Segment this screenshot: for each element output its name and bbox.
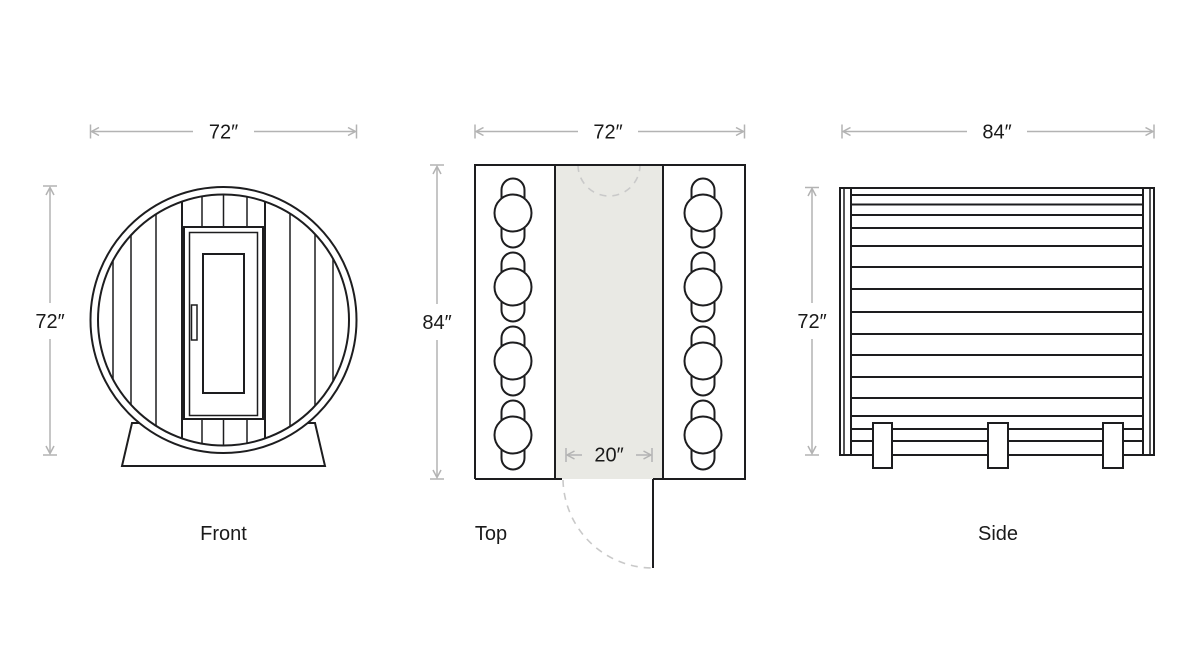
top-width-value: 72″ xyxy=(593,122,622,144)
sauna-dimension-diagram: 72″ 72″ Front xyxy=(0,0,1200,654)
seat-icon xyxy=(685,401,722,470)
top-view: 72″ 84″ xyxy=(422,122,745,569)
seat-icon xyxy=(495,253,532,322)
side-length-value: 84″ xyxy=(982,122,1011,144)
front-height-value: 72″ xyxy=(35,311,64,333)
top-aisle xyxy=(555,165,663,479)
front-door-window xyxy=(203,254,244,393)
top-depth-dimension: 84″ xyxy=(422,165,451,479)
front-view: 72″ 72″ Front xyxy=(35,122,356,546)
side-length-dimension: 84″ xyxy=(842,122,1154,144)
side-view-label: Side xyxy=(978,523,1018,545)
front-height-dimension: 72″ xyxy=(35,186,64,455)
side-support-leg xyxy=(1103,423,1123,468)
seat-icon xyxy=(495,401,532,470)
top-door-swing-arc xyxy=(563,480,653,568)
front-view-label: Front xyxy=(200,523,247,545)
front-width-value: 72″ xyxy=(209,122,238,144)
seat-icon xyxy=(495,179,532,248)
diagram-canvas: 72″ 72″ Front xyxy=(0,0,1200,654)
side-height-dimension: 72″ xyxy=(797,188,826,456)
side-support-leg xyxy=(873,423,892,468)
top-width-dimension: 72″ xyxy=(475,122,745,144)
side-height-value: 72″ xyxy=(797,311,826,333)
top-door-value: 20″ xyxy=(594,445,623,467)
front-door-handle xyxy=(192,305,198,340)
side-view: 84″ 72″ Side xyxy=(797,122,1154,546)
seat-icon xyxy=(685,253,722,322)
front-width-dimension: 72″ xyxy=(91,122,357,144)
front-door xyxy=(184,227,263,419)
top-view-label: Top xyxy=(475,523,507,545)
side-support-leg xyxy=(988,423,1008,468)
seat-icon xyxy=(685,179,722,248)
seat-icon xyxy=(495,327,532,396)
seat-icon xyxy=(685,327,722,396)
top-depth-value: 84″ xyxy=(422,312,451,334)
